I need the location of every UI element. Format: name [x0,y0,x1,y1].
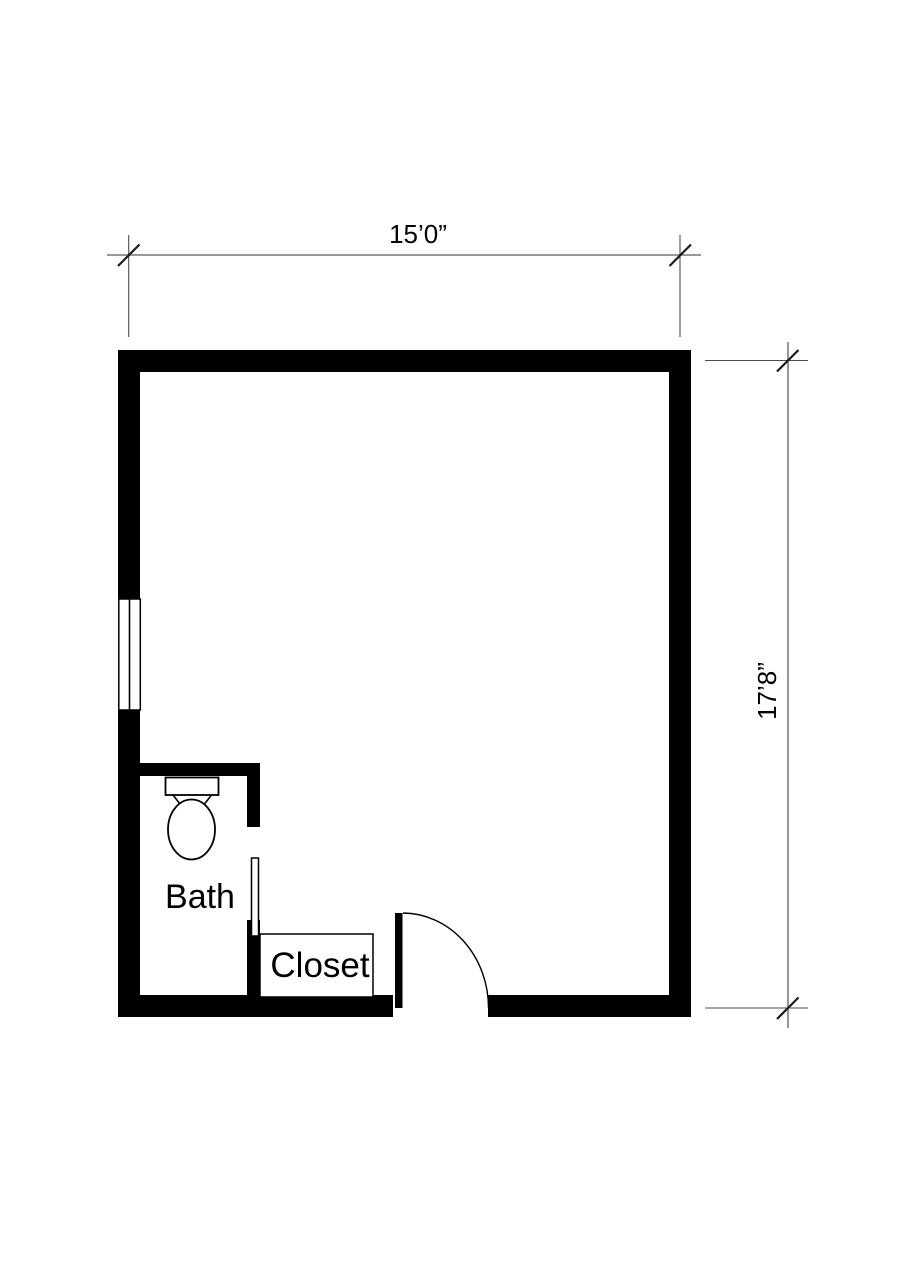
toilet [166,778,219,860]
width-dimension-label: 15’0” [389,219,447,249]
wall-bath-north [140,763,260,776]
wall-bottom-left [118,995,393,1017]
wall-right [669,350,691,1017]
floor-plan-page: 15’0” 17’8” [0,0,900,1273]
entry-door-swing-arc [403,913,489,1008]
right-dimension: 17’8” [705,342,808,1028]
top-dimension: 15’0” [107,219,701,337]
wall-left-upper [118,350,140,599]
wall-top [118,350,691,372]
toilet-tank [166,778,219,796]
wall-left-lower [118,710,140,1017]
entry-door [395,913,489,1008]
entry-door-leaf [395,913,403,1008]
toilet-shoulder-right [205,795,212,804]
floor-plan-canvas: 15’0” 17’8” [0,0,900,1273]
toilet-shoulder-left [173,795,180,804]
wall-bath-east-upper [247,763,260,827]
toilet-bowl [168,800,215,860]
exterior-walls [118,350,691,1017]
bath-label: Bath [165,878,235,916]
height-dimension-label: 17’8” [752,662,782,720]
closet-label: Closet [270,946,369,985]
window [119,599,141,710]
bath-door-leaf [252,858,259,936]
wall-bottom-right [488,995,691,1017]
closet: Closet [260,934,373,997]
